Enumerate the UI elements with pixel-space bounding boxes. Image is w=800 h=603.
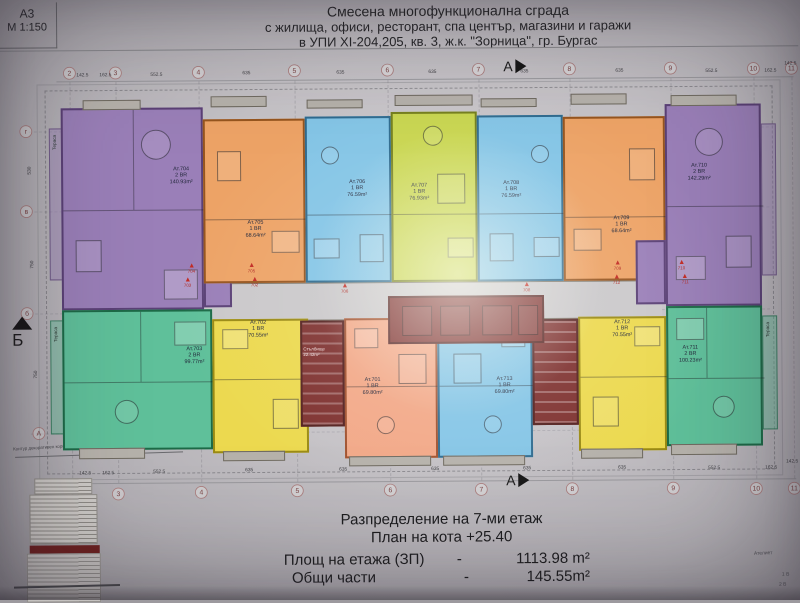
dim-label: 142.5 (784, 60, 796, 65)
apartment-label-701: Ат.7011 BR69.80m² (351, 376, 395, 396)
balcony-slab (223, 451, 285, 461)
dining-table (141, 130, 171, 160)
bathroom (676, 318, 704, 340)
apartment-706 (305, 116, 392, 283)
vent-number: 705 (248, 269, 255, 273)
grid-bubble: 11 (788, 482, 800, 495)
footer-elevation: План на кота +25.40 (242, 527, 642, 547)
dim-label: 635 (242, 70, 250, 75)
balcony-slab (211, 96, 267, 107)
dim-label: 142.5 (76, 72, 88, 77)
vent-marker-icon: ▲709 (610, 260, 626, 274)
vent-number: 706 (341, 289, 348, 293)
grid-bubble: 7 (472, 63, 485, 76)
room-divider (706, 308, 707, 378)
vent-number: 703 (184, 283, 191, 287)
grid-bubble: 4 (192, 66, 205, 79)
dining-table (115, 400, 139, 424)
drawing-sheet: A3 М 1:150 Смесена многофункционална сгр… (0, 0, 800, 603)
legend-cut-title: Ателиет (754, 550, 773, 556)
room-divider (307, 214, 393, 216)
bed (593, 396, 619, 426)
section-marker-b: Б (12, 317, 32, 351)
section-arrow-icon (519, 473, 530, 487)
dining-table (484, 415, 502, 433)
balcony-slab (481, 98, 537, 107)
elevator-shaft (402, 306, 432, 336)
grid-bubble: 9 (667, 482, 680, 495)
apartment-710-hall (636, 240, 666, 304)
bathroom (574, 229, 602, 251)
bed (453, 353, 481, 383)
grid-bubble: 6 (384, 484, 397, 497)
sheet-size-label: A3 (0, 6, 56, 20)
room-divider (479, 213, 565, 215)
dining-table (321, 146, 339, 164)
vent-number: 712 (613, 280, 620, 284)
vent-number: 704 (188, 269, 195, 273)
apartment-label-707: Ат.7071 BR76.93m² (397, 182, 441, 202)
dim-label: 162.5 (764, 67, 776, 72)
balcony-slab (443, 455, 525, 466)
vent-marker-icon: ▲703 (180, 277, 196, 291)
apartment-705 (203, 119, 306, 284)
dim-label: 635 (428, 69, 436, 74)
terrace-strip (761, 123, 777, 275)
apartment-label-706: Ат.7061 BR76.59m² (335, 178, 379, 198)
room-divider (63, 209, 205, 211)
bed (217, 151, 241, 181)
grid-bubble: 9 (664, 62, 677, 75)
grid-bubble: 5 (291, 484, 304, 497)
grid-bubble: 3 (112, 488, 125, 501)
grid-bubble: 4 (195, 486, 208, 499)
room-divider (215, 379, 311, 381)
dim-label: 142.5 (786, 458, 798, 463)
vent-marker-icon: ▲705 (244, 263, 260, 277)
terrace-label: Тераса (765, 322, 770, 337)
balcony-slab (571, 93, 627, 104)
apartment-label-713: Ат.7131 BR69.80m² (483, 375, 527, 395)
vent-marker-icon: ▲708 (519, 282, 535, 296)
bed (273, 399, 299, 429)
balcony-slab (395, 94, 473, 106)
footer-title: Разпределение на 7-ми етаж (241, 509, 641, 529)
apartment-label-711: Ат.7112 BR100.23m² (669, 344, 713, 364)
sheet-scale-label: М 1:150 (0, 21, 56, 33)
elevation-band (27, 553, 101, 603)
footer-area-dash: - (457, 551, 462, 568)
balcony-slab (79, 448, 145, 459)
section-letter: А (503, 58, 512, 74)
bathroom (448, 237, 474, 257)
footer-area-value: 1113.98 m² (470, 550, 590, 568)
apartment-label-704: Ат.7042 BR140.93m² (159, 165, 203, 185)
section-arrow-icon (516, 59, 527, 73)
footer-common-label: Общи части (292, 569, 376, 587)
dim-label: 552.5 (705, 68, 717, 73)
elevation-band (29, 494, 97, 544)
section-letter: Б (12, 331, 32, 351)
dim-label: 162.5 (99, 72, 111, 77)
bathroom (534, 237, 560, 257)
vent-number: 711 (681, 280, 688, 284)
vent-marker-icon: ▲706 (337, 283, 353, 297)
vent-number: 708 (523, 288, 530, 292)
bathroom (354, 328, 378, 348)
room-divider (669, 377, 765, 379)
vent-marker-icon: ▲711 (677, 274, 693, 288)
room-divider (140, 312, 141, 382)
grid-bubble: 6 (381, 64, 394, 77)
room-divider (393, 213, 479, 215)
balcony-slab (671, 95, 737, 106)
vent-marker-icon: ▲702 (247, 277, 263, 291)
section-letter: А (506, 472, 515, 488)
stairwell-left (300, 320, 345, 426)
grid-bubble: 8 (566, 482, 579, 495)
bed (726, 236, 752, 268)
terrace-strip: Тераса (762, 315, 778, 429)
apartment-label-708: Ат.7081 BR76.59m² (489, 179, 533, 199)
balcony-slab (671, 444, 737, 455)
room-divider (581, 376, 669, 378)
vent-number: 709 (614, 266, 621, 270)
apartment-702 (212, 319, 309, 454)
balcony-slab (83, 100, 141, 110)
vent-marker-icon: ▲712 (609, 274, 625, 288)
grid-bubble: 7 (475, 483, 488, 496)
balcony-slab (349, 456, 431, 467)
vent-number: 702 (251, 283, 258, 287)
dim-label: 750 (33, 371, 38, 379)
vent-number: 710 (678, 266, 685, 270)
dim-label: 552.5 (150, 72, 162, 77)
dining-table (423, 126, 443, 146)
dim-label: 530 (26, 167, 31, 175)
balcony-slab (307, 99, 363, 108)
grid-bubble: 10 (750, 482, 763, 495)
footer-area-label: Площ на етажа (ЗП) (284, 551, 425, 569)
apartment-711 (666, 305, 763, 446)
grid-bubble: 10 (747, 62, 760, 75)
dining-table (531, 145, 549, 163)
elevator-shaft (440, 306, 470, 336)
bed (490, 233, 514, 261)
elevator-core (388, 295, 544, 344)
grid-bubble: 5 (288, 64, 301, 77)
section-marker-a-bottom: А (506, 472, 529, 488)
bed (398, 354, 426, 384)
footer-common-dash: - (464, 569, 469, 586)
grid-bubble: г (19, 125, 32, 138)
balcony-slab (581, 448, 643, 458)
dim-label: 635 (615, 67, 623, 72)
grid-bubble: 8 (563, 62, 576, 75)
stairwell-label: Стълбище 22.42m² (303, 346, 336, 357)
vent-marker-icon: ▲710 (674, 260, 690, 274)
bathroom (314, 238, 340, 258)
stairwell-area: 22.42m² (303, 352, 336, 358)
vent-marker-icon: ▲704 (184, 263, 200, 277)
legend-cut-2br: 2 В (779, 581, 786, 587)
bathroom (174, 321, 206, 345)
bed (437, 174, 465, 204)
apartment-label-710: Ат.7102 BR142.29m² (677, 162, 721, 182)
section-marker-a-top: А (503, 58, 526, 74)
footer-common-value: 145.55m² (474, 568, 590, 586)
bed (629, 148, 655, 180)
terrace-label: Тераса (53, 327, 58, 342)
dining-table (695, 128, 723, 156)
room-divider (133, 110, 135, 210)
terrace-label: Тераса (52, 135, 57, 150)
apartment-703 (62, 309, 213, 450)
apartment-label-702: Ат.7021 BR70.55m² (236, 319, 280, 339)
elevator-shaft (518, 305, 538, 335)
section-arrow-icon (12, 317, 32, 330)
bed (76, 240, 102, 272)
room-divider (65, 381, 215, 383)
room-divider (667, 205, 763, 207)
grid-bubble: 2 (63, 67, 76, 80)
legend-cut-1br: 1 В (782, 571, 789, 577)
elevation-band (34, 478, 92, 494)
apartment-label-703: Ат.7032 BR99.77m² (173, 345, 217, 365)
apartment-label-712: Ат.7121 BR70.55m² (600, 318, 644, 338)
title-block: A3 М 1:150 (0, 2, 57, 48)
apartment-label-705: Ат.7051 BR68.64m² (234, 219, 278, 239)
bed (360, 234, 384, 262)
dining-table (377, 416, 395, 434)
elevator-shaft (482, 305, 512, 335)
dim-label: 750 (29, 261, 34, 269)
grid-bubble: в (20, 205, 33, 218)
dining-table (713, 396, 735, 418)
dim-label: 635 (336, 69, 344, 74)
apartment-label-709: Ат.7091 BR68.64m² (600, 214, 644, 234)
drawing-title: Смесена многофункционална сграда с жилищ… (108, 0, 788, 51)
grid-axis-11-line (791, 77, 795, 478)
